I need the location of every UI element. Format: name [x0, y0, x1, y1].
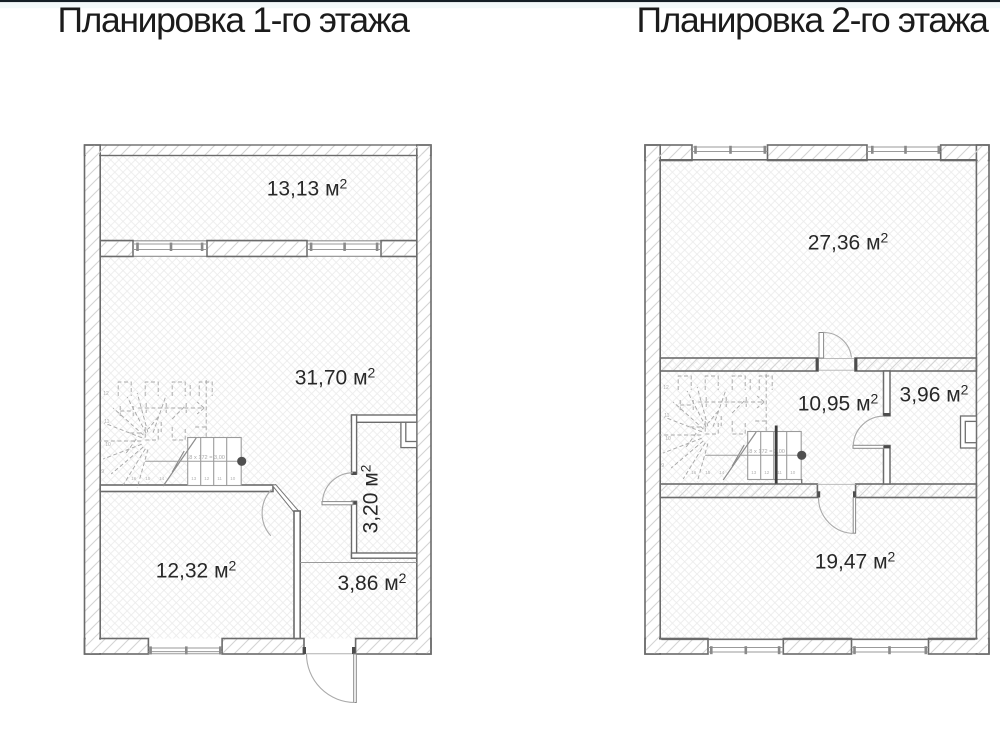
svg-text:3,86 м2: 3,86 м2 — [338, 570, 407, 595]
svg-text:27,36 м2: 27,36 м2 — [808, 230, 889, 255]
svg-text:12,32 м2: 12,32 м2 — [156, 558, 237, 583]
svg-text:3,96 м2: 3,96 м2 — [900, 382, 969, 407]
svg-text:Планировка 2-го этажа: Планировка 2-го этажа — [636, 0, 989, 40]
svg-text:10,95 м2: 10,95 м2 — [798, 391, 879, 416]
svg-text:13,13 м2: 13,13 м2 — [267, 176, 348, 201]
svg-text:31,70 м2: 31,70 м2 — [295, 365, 376, 390]
svg-text:Планировка 1-го этажа: Планировка 1-го этажа — [57, 0, 410, 40]
svg-text:3,20 м2: 3,20 м2 — [358, 464, 383, 533]
svg-text:19,47 м2: 19,47 м2 — [815, 549, 896, 574]
